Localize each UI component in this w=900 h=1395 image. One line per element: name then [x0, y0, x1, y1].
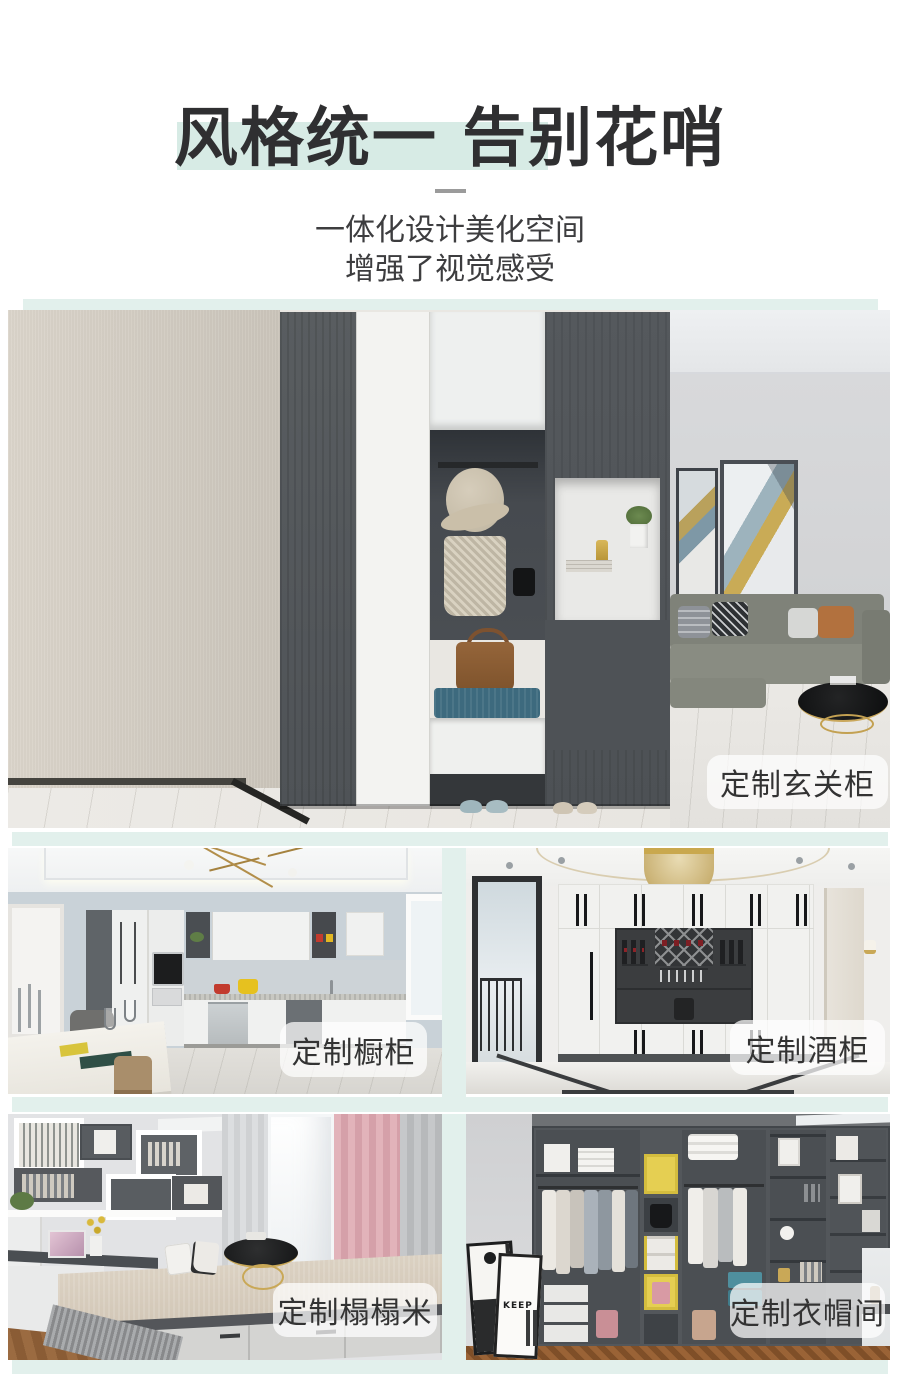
rope-bag [444, 536, 506, 616]
sofa-pillow-zigzag [712, 602, 748, 636]
colB-yellow-cube-top [644, 1154, 678, 1194]
title-divider [435, 189, 466, 193]
sofa-pillow-white [788, 608, 818, 638]
poster-moon-glyph [484, 1252, 496, 1264]
floor-inlay-front [562, 1090, 794, 1094]
cabinet-dark-panel [280, 312, 356, 806]
page-title: 风格统一 告别花哨 [0, 87, 900, 179]
colE-box-1 [836, 1136, 858, 1160]
handle-top-5 [796, 894, 799, 926]
dining-chair-wood [114, 1056, 152, 1094]
wall-cabinet-right [346, 912, 384, 956]
shelf-bottles-left [622, 940, 648, 966]
shirt-3 [570, 1190, 584, 1268]
faucet [330, 980, 333, 994]
spotlight-1 [506, 862, 513, 869]
shelf-box-1 [14, 1118, 84, 1172]
coffee-table-books [830, 676, 856, 685]
colD-books [800, 1262, 822, 1282]
cabinet-white-panel [356, 312, 430, 806]
colA-drawers [544, 1282, 588, 1342]
colA-towels [578, 1148, 614, 1172]
slipper-pair-gray-1 [460, 800, 482, 813]
slipper-pair-beige-1 [553, 802, 573, 814]
handle-top-1 [576, 894, 579, 926]
bench-cushion [434, 688, 540, 718]
label-kitchen-text: 定制橱柜 [292, 1028, 416, 1072]
colC-towels-top [688, 1134, 738, 1160]
baseboard [8, 778, 246, 785]
entry-wall [8, 310, 280, 788]
tea-set [246, 1232, 266, 1240]
upper-cabinets [212, 912, 310, 960]
handle-long-1 [590, 952, 593, 1020]
label-tatami-text: 定制榻榻米 [278, 1288, 433, 1332]
sofa-armrest [862, 610, 890, 684]
colA-rod [538, 1186, 638, 1189]
sofa-pillow-brown [818, 606, 854, 638]
colC-bag-bottom [692, 1310, 716, 1340]
poster-bottles [526, 1310, 540, 1346]
cabinet-top-white [430, 312, 545, 430]
fridge-handle-1 [120, 922, 122, 984]
colD-bottles [804, 1184, 820, 1202]
bench-drawer [430, 718, 545, 774]
niche-plant [626, 506, 652, 526]
binoculars [513, 568, 535, 596]
wine-glass-1 [104, 1008, 116, 1030]
handle-top-3 [692, 894, 695, 926]
lr-ceiling [670, 310, 890, 374]
niche-plant-pot [630, 524, 648, 548]
colA-bag-pink [596, 1310, 618, 1338]
colE-box-2 [862, 1210, 880, 1232]
cushion-pillow-1 [164, 1242, 194, 1275]
sofa-pillow-gray [678, 606, 710, 638]
mint-gap-row2 [442, 848, 466, 1112]
subtitle-line-1: 一体化设计美化空间 [0, 211, 900, 250]
pot-red [214, 984, 230, 994]
flowers-yellow [82, 1212, 110, 1238]
shelf-ledge [8, 1210, 230, 1217]
wall-art-right [720, 460, 798, 602]
colC-shirt-2 [703, 1188, 718, 1268]
label-wine: 定制酒柜 [730, 1020, 885, 1075]
chandelier-bulb-2 [258, 850, 268, 860]
dishwasher [208, 1002, 248, 1044]
pot-yellow [238, 979, 258, 994]
colB-drawer-white [644, 1236, 678, 1270]
cushion-pillow-2 [190, 1241, 219, 1276]
stemware-rack [660, 968, 708, 982]
label-entryway-text: 定制玄关柜 [720, 760, 875, 804]
subtitle-line-2: 增强了视觉感受 [0, 250, 900, 289]
cabinet-right-lower [545, 620, 670, 750]
diamond-wine-rack [655, 928, 713, 966]
sofa-chaise [670, 678, 766, 708]
living-room [670, 310, 890, 828]
colC-shirt-4 [733, 1188, 747, 1266]
niche-decor [674, 998, 694, 1020]
colA-top-shelf [536, 1174, 640, 1177]
label-wardrobe: 定制衣帽间 [730, 1283, 885, 1338]
bench-recess [430, 774, 545, 806]
shelf-box-2-frame [94, 1130, 116, 1154]
promo-page: 风格统一 告别花哨 一体化设计美化空间 增强了视觉感受 [0, 0, 900, 1395]
chandelier-bulb-3 [288, 868, 297, 877]
shirt-6 [612, 1190, 625, 1272]
handle-top-2 [634, 894, 637, 926]
label-entryway: 定制玄关柜 [707, 755, 888, 809]
chandelier-bulb-1 [184, 860, 194, 870]
mint-gap-row3 [442, 1114, 466, 1374]
colD-clock [780, 1226, 794, 1240]
mint-strip-top [23, 299, 878, 310]
shelf-bottles-right [720, 940, 746, 966]
rack-bottle-dots [662, 940, 706, 946]
oven-drawer [152, 988, 182, 1006]
niche-books [566, 560, 612, 572]
shelf-box-3-books [148, 1142, 180, 1166]
colC-rod [684, 1184, 764, 1187]
colD-frame-item [778, 1138, 800, 1166]
shirt-2 [556, 1190, 570, 1274]
label-tatami: 定制榻榻米 [273, 1283, 437, 1337]
handbag [456, 642, 514, 692]
hook-rail [438, 462, 538, 468]
shelf-plant-dot [190, 932, 204, 942]
laptop [48, 1230, 86, 1258]
shirt-4 [584, 1190, 598, 1274]
label-kitchen: 定制橱柜 [280, 1022, 427, 1077]
shirt-5 [598, 1190, 612, 1270]
colB-pink-item [652, 1282, 670, 1304]
colC-shirt-3 [718, 1188, 733, 1262]
coffee-table-base [820, 714, 874, 734]
colB-bottom-dark [644, 1314, 678, 1344]
mug-yellow [326, 934, 333, 942]
colE-frame [838, 1174, 862, 1204]
bottle-label-left [624, 948, 644, 952]
colA-box-white [544, 1144, 570, 1172]
mint-strip-2 [12, 832, 888, 846]
kitchen-door [8, 904, 64, 1038]
colC-shirt-1 [688, 1188, 703, 1264]
desk-plant [10, 1192, 34, 1210]
handle-top-4 [750, 894, 753, 926]
spotlight-3 [796, 857, 803, 864]
hanging-handbag [650, 1204, 672, 1228]
flower-vase [90, 1236, 102, 1256]
label-wardrobe-text: 定制衣帽间 [730, 1289, 885, 1333]
slipper-pair-beige-2 [577, 802, 597, 814]
wall-sconce [864, 940, 876, 954]
slipper-pair-gray-2 [486, 800, 508, 813]
kitchen-window [406, 894, 442, 1020]
colD-gold-decor [778, 1268, 790, 1282]
spotlight-4 [848, 863, 855, 870]
balcony-railing [480, 978, 522, 1051]
hero-image-entryway [8, 310, 890, 828]
spotlight-2 [558, 857, 565, 864]
shirt-1 [542, 1190, 556, 1270]
shelf-box-6-box [184, 1184, 208, 1204]
candelabra [18, 988, 21, 1032]
fridge-handle-2 [134, 922, 136, 984]
shirt-7 [625, 1190, 638, 1268]
wine-glass-2 [124, 1000, 136, 1022]
wall-art-left [676, 468, 718, 598]
niche-lower-shelf [615, 988, 753, 990]
mug-red [316, 934, 323, 942]
label-wine-text: 定制酒柜 [746, 1026, 870, 1070]
built-in-oven [152, 952, 184, 986]
